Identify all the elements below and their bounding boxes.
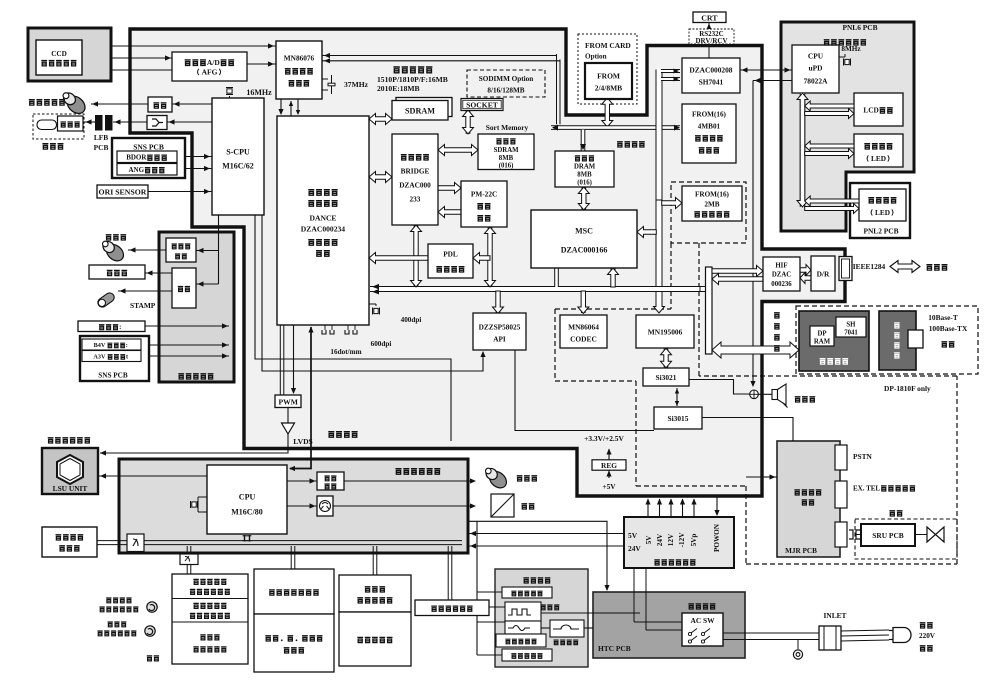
svg-text:1510P/1810P/F:16MB: 1510P/1810P/F:16MB bbox=[377, 75, 448, 84]
svg-text:Sort Memory: Sort Memory bbox=[486, 123, 529, 132]
svg-text:PCB: PCB bbox=[94, 143, 109, 152]
svg-text:EX. TEL: EX. TEL bbox=[853, 484, 880, 492]
svg-text:A/D: A/D bbox=[207, 58, 221, 67]
svg-text:CODEC: CODEC bbox=[570, 335, 597, 344]
svg-text:CPU: CPU bbox=[808, 52, 824, 61]
svg-text:DP: DP bbox=[818, 330, 827, 337]
svg-text:DZAC: DZAC bbox=[772, 271, 791, 278]
svg-text:DZAC000234: DZAC000234 bbox=[301, 225, 346, 234]
svg-text:4MB01: 4MB01 bbox=[698, 122, 721, 130]
svg-text:100Base-TX: 100Base-TX bbox=[929, 324, 968, 333]
svg-text:8MB: 8MB bbox=[499, 155, 514, 162]
svg-text:ORI SENSOR: ORI SENSOR bbox=[99, 188, 147, 197]
svg-text:REG: REG bbox=[601, 461, 617, 470]
svg-text:24V: 24V bbox=[628, 544, 641, 553]
svg-text:HIF: HIF bbox=[775, 262, 787, 269]
svg-text:STAMP: STAMP bbox=[130, 301, 156, 310]
svg-text:PSTN: PSTN bbox=[853, 452, 873, 461]
svg-text:BRIDGE: BRIDGE bbox=[401, 167, 430, 176]
svg-text:SH7041: SH7041 bbox=[699, 78, 724, 87]
svg-text:10Base-T: 10Base-T bbox=[928, 313, 958, 322]
svg-text:PM-22C: PM-22C bbox=[471, 190, 497, 199]
svg-text:2MB: 2MB bbox=[704, 200, 719, 208]
svg-text:37MHz: 37MHz bbox=[344, 80, 369, 89]
svg-text:MN86064: MN86064 bbox=[568, 323, 599, 332]
svg-text:233: 233 bbox=[410, 195, 421, 204]
svg-text:Option: Option bbox=[585, 53, 607, 61]
svg-text:RAM: RAM bbox=[814, 338, 831, 345]
svg-text:600dpi: 600dpi bbox=[371, 340, 392, 348]
svg-text:MSC: MSC bbox=[575, 227, 593, 236]
svg-text:SDRAM: SDRAM bbox=[405, 107, 435, 116]
svg-text:SNS PCB: SNS PCB bbox=[98, 371, 128, 379]
svg-text:LCD: LCD bbox=[863, 106, 878, 115]
svg-text:220V: 220V bbox=[919, 632, 936, 640]
svg-text:8MHz: 8MHz bbox=[841, 45, 861, 53]
svg-text:SDRAM: SDRAM bbox=[494, 147, 520, 154]
svg-text:LVDS: LVDS bbox=[293, 437, 313, 446]
svg-text:8/16/128MB: 8/16/128MB bbox=[487, 87, 524, 95]
svg-text:FROM(16): FROM(16) bbox=[695, 190, 730, 198]
svg-text:B4V: B4V bbox=[94, 342, 106, 349]
svg-text:DANCE: DANCE bbox=[310, 214, 337, 223]
svg-text:(016): (016) bbox=[499, 162, 514, 169]
svg-text:Si3021: Si3021 bbox=[656, 373, 677, 382]
svg-text:AFG: AFG bbox=[202, 68, 218, 77]
svg-text:INLET: INLET bbox=[823, 611, 846, 620]
svg-text:MN86076: MN86076 bbox=[284, 54, 315, 63]
svg-text:+5V: +5V bbox=[602, 482, 616, 491]
svg-text:Si3015: Si3015 bbox=[668, 414, 689, 423]
svg-text:PWM: PWM bbox=[279, 397, 298, 406]
svg-text:MN195006: MN195006 bbox=[648, 328, 683, 337]
svg-text::: : bbox=[119, 324, 121, 331]
svg-text:M16C/80: M16C/80 bbox=[231, 508, 263, 517]
svg-text:CRT: CRT bbox=[701, 14, 718, 23]
svg-text:24V: 24V bbox=[656, 533, 664, 546]
svg-text:DP-1810F only: DP-1810F only bbox=[884, 384, 931, 393]
svg-text:2010E:18MB: 2010E:18MB bbox=[377, 84, 420, 93]
svg-text:FROM: FROM bbox=[597, 72, 620, 81]
svg-text:S-CPU: S-CPU bbox=[226, 148, 250, 157]
svg-text:DZAC000208: DZAC000208 bbox=[689, 66, 732, 75]
svg-text:78022A: 78022A bbox=[804, 77, 828, 86]
svg-text:CCD: CCD bbox=[51, 50, 67, 58]
svg-text:16dot/mm: 16dot/mm bbox=[330, 348, 361, 356]
svg-text:LED: LED bbox=[875, 208, 890, 217]
svg-text:DZZSP58025: DZZSP58025 bbox=[479, 323, 521, 332]
svg-text:8MB: 8MB bbox=[577, 171, 592, 178]
svg-text:A3V: A3V bbox=[93, 354, 106, 361]
svg-text:BDOR: BDOR bbox=[126, 154, 147, 162]
svg-text:5V: 5V bbox=[628, 531, 638, 540]
svg-text:-12V: -12V bbox=[678, 532, 686, 548]
svg-text:AC SW: AC SW bbox=[690, 616, 715, 625]
svg-text:POWON: POWON bbox=[713, 523, 721, 552]
svg-text:DZAC000166: DZAC000166 bbox=[561, 246, 608, 255]
svg-text:CPU: CPU bbox=[239, 493, 256, 502]
svg-text:7041: 7041 bbox=[844, 329, 858, 336]
svg-text:2/4/8MB: 2/4/8MB bbox=[595, 84, 623, 93]
svg-text:HTC PCB: HTC PCB bbox=[598, 644, 631, 653]
svg-text:400dpi: 400dpi bbox=[401, 316, 422, 324]
svg-text:IEEE1284: IEEE1284 bbox=[853, 262, 886, 271]
svg-text:12V: 12V bbox=[667, 533, 675, 546]
svg-text:(016): (016) bbox=[577, 179, 592, 186]
svg-text:D/R: D/R bbox=[817, 270, 830, 279]
svg-text:PDL: PDL bbox=[443, 250, 458, 259]
svg-text:PNL6 PCB: PNL6 PCB bbox=[842, 23, 877, 32]
svg-text:ANG: ANG bbox=[129, 166, 145, 174]
svg-text:5Vp: 5Vp bbox=[690, 534, 698, 547]
svg-text::: : bbox=[126, 342, 128, 349]
svg-text:+3.3V/+2.5V: +3.3V/+2.5V bbox=[584, 434, 624, 443]
svg-text:FROM(16): FROM(16) bbox=[692, 110, 727, 118]
svg-text:MJR PCB: MJR PCB bbox=[785, 547, 817, 555]
svg-text:LED: LED bbox=[871, 154, 886, 163]
svg-text:SODIMM Option: SODIMM Option bbox=[479, 75, 534, 83]
svg-text:DRAM: DRAM bbox=[574, 163, 596, 170]
svg-text:DRV/RCV: DRV/RCV bbox=[695, 37, 727, 45]
svg-text:SNS PCB: SNS PCB bbox=[133, 143, 164, 152]
svg-text:5V: 5V bbox=[645, 535, 653, 545]
svg-text:000236: 000236 bbox=[771, 281, 792, 288]
svg-text:LSU UNIT: LSU UNIT bbox=[53, 484, 88, 493]
svg-text:API: API bbox=[493, 335, 506, 344]
svg-text:SH: SH bbox=[846, 321, 856, 328]
svg-text:M16C/62: M16C/62 bbox=[222, 162, 254, 171]
svg-text:SOCKET: SOCKET bbox=[466, 101, 498, 110]
svg-text:SRU PCB: SRU PCB bbox=[872, 531, 903, 540]
svg-text:DZAC000: DZAC000 bbox=[399, 181, 431, 190]
svg-text:FROM CARD: FROM CARD bbox=[585, 41, 631, 50]
svg-text:uPD: uPD bbox=[809, 64, 823, 73]
svg-text:16MHz: 16MHz bbox=[246, 88, 272, 97]
svg-text:PNL2 PCB: PNL2 PCB bbox=[863, 227, 898, 236]
svg-text:LFB: LFB bbox=[94, 133, 108, 142]
